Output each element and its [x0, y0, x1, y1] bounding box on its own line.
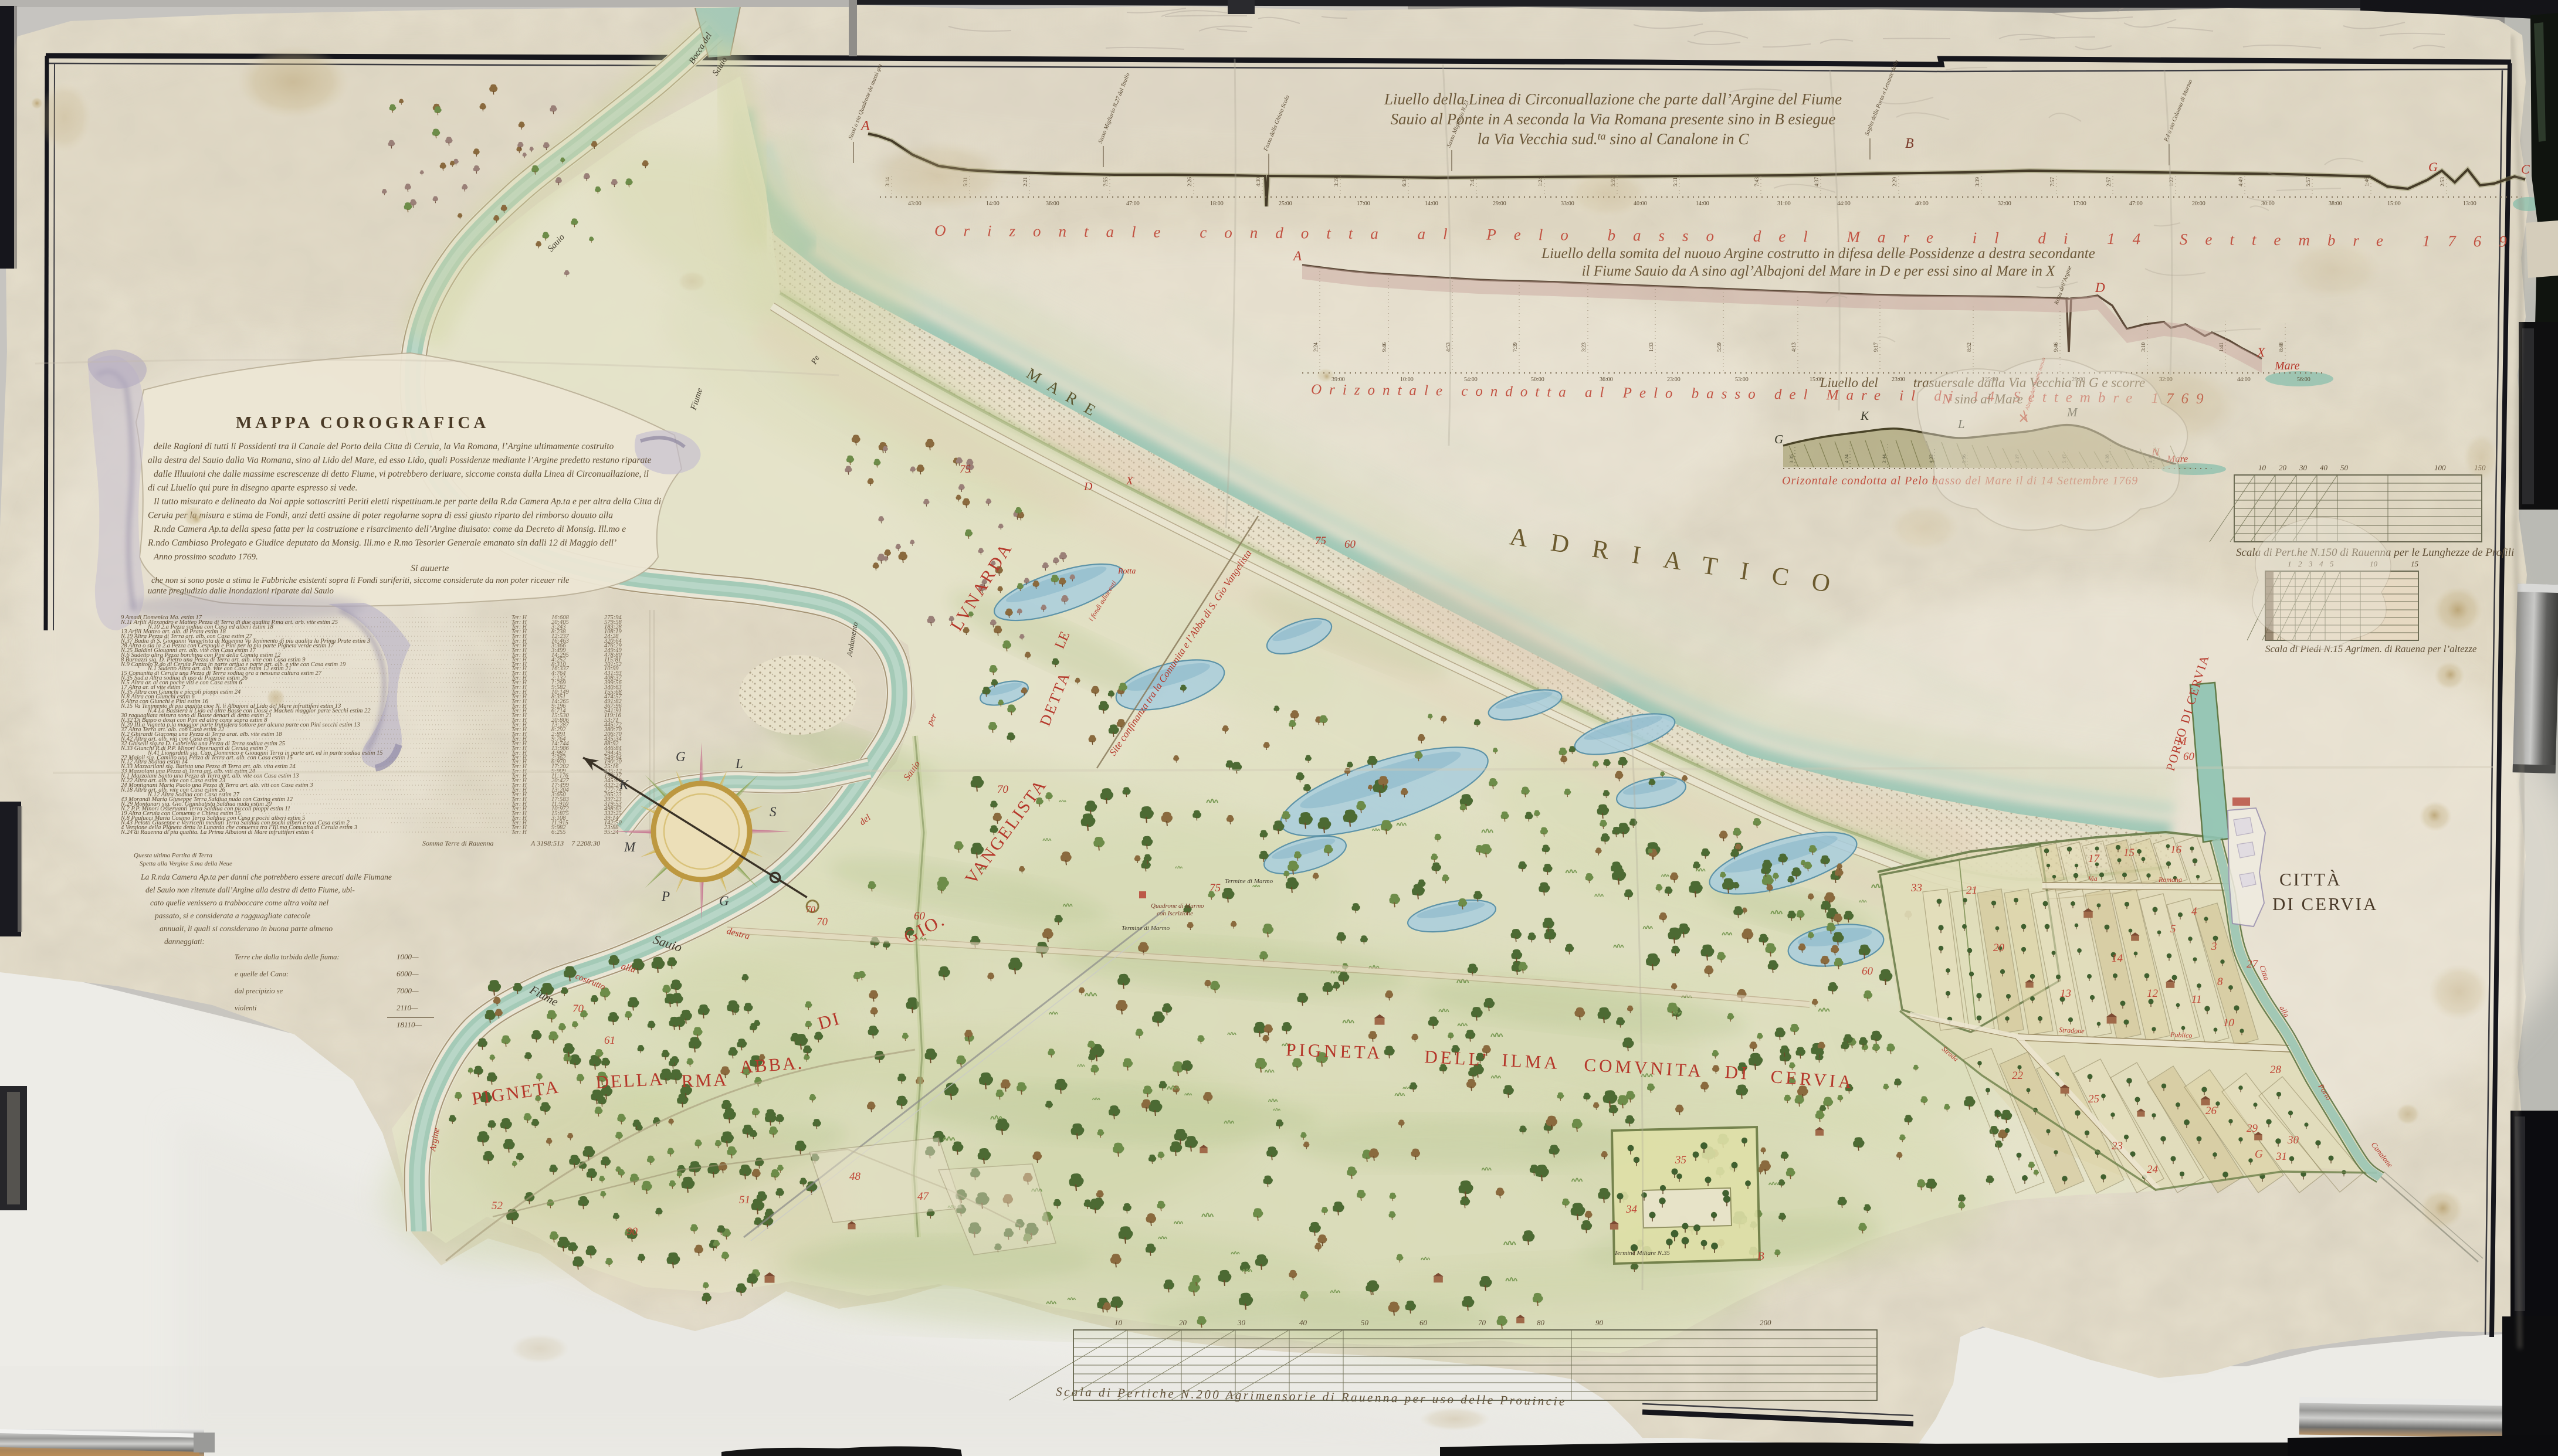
svg-text:R.ndo Cambiaso Prolegato e Giu: R.ndo Cambiaso Prolegato e Giudice deput…: [147, 538, 616, 548]
svg-text:Termine di Marmo: Termine di Marmo: [1225, 878, 1273, 885]
svg-text:D: D: [2095, 280, 2105, 295]
svg-text:6:34: 6:34: [1401, 177, 1407, 186]
svg-text:80: 80: [1537, 1318, 1545, 1327]
svg-text:60: 60: [1419, 1318, 1428, 1327]
svg-text:7:57: 7:57: [2049, 177, 2055, 186]
svg-text:Termine di Marmo: Termine di Marmo: [1122, 925, 1170, 932]
svg-text:G: G: [2428, 159, 2438, 174]
svg-text:di cui Liuello qui pure in dis: di cui Liuello qui pure in disegno apart…: [148, 483, 357, 493]
svg-text:Il tutto misurato e delineato: Il tutto misurato e delineato da Noi app…: [153, 497, 661, 507]
svg-text:dal precipizio se: dal precipizio se: [235, 987, 283, 995]
svg-text:44:00: 44:00: [2237, 376, 2251, 383]
svg-text:32:00: 32:00: [1998, 201, 2011, 207]
svg-text:passato, si e considerata a ra: passato, si e considerata a ragguagliate…: [154, 911, 310, 920]
svg-text:A: A: [1292, 249, 1302, 263]
svg-text:27: 27: [2247, 958, 2259, 970]
svg-text:70: 70: [572, 1003, 584, 1015]
svg-text:18110—: 18110—: [397, 1020, 422, 1029]
svg-text:26: 26: [2205, 1105, 2217, 1117]
svg-text:10:00: 10:00: [1400, 376, 1414, 383]
svg-text:Via: Via: [2088, 874, 2098, 883]
svg-text:L: L: [735, 756, 743, 771]
svg-text:7:55: 7:55: [1103, 177, 1109, 186]
svg-text:33: 33: [1910, 882, 1922, 894]
svg-text:CITTÀ: CITTÀ: [2279, 869, 2342, 890]
svg-text:10: 10: [2258, 463, 2266, 472]
svg-text:44:00: 44:00: [1837, 201, 1851, 207]
svg-text:52: 52: [492, 1200, 503, 1212]
svg-text:2:26: 2:26: [1187, 177, 1192, 186]
svg-text:90: 90: [626, 1226, 638, 1238]
svg-text:2:57: 2:57: [2106, 177, 2112, 186]
svg-text:17:00: 17:00: [1357, 201, 1370, 207]
svg-text:PIGNETA: PIGNETA: [1286, 1039, 1383, 1063]
svg-text:29:00: 29:00: [1493, 201, 1506, 207]
svg-text:3:44: 3:44: [1881, 454, 1887, 463]
svg-text:K: K: [1860, 409, 1869, 423]
svg-text:1000—: 1000—: [397, 952, 419, 961]
svg-text:9:46: 9:46: [2053, 342, 2059, 352]
svg-text:30: 30: [2299, 463, 2308, 472]
svg-text:il Fiume Sauio da A sino agl’A: il Fiume Sauio da A sino agl’Albajoni de…: [1582, 263, 2056, 279]
svg-text:DELLA: DELLA: [595, 1068, 665, 1092]
svg-text:50: 50: [2340, 463, 2349, 472]
svg-text:200: 200: [1760, 1318, 1771, 1327]
svg-text:95:24: 95:24: [604, 829, 619, 836]
svg-text:15:00: 15:00: [2387, 201, 2401, 207]
svg-text:30: 30: [1237, 1318, 1246, 1327]
svg-text:5:57: 5:57: [2305, 177, 2311, 186]
svg-text:35: 35: [1675, 1154, 1686, 1166]
svg-text:5: 5: [2170, 923, 2176, 935]
svg-text:12: 12: [2147, 987, 2159, 1000]
svg-text:24: 24: [2147, 1163, 2159, 1176]
svg-text:7000—: 7000—: [397, 986, 419, 995]
svg-text:A: A: [860, 118, 870, 134]
svg-text:Rotta: Rotta: [1117, 567, 1136, 576]
svg-text:23: 23: [2112, 1140, 2123, 1152]
svg-text:cato quelle venissero a trabbo: cato quelle venissero a trabboccare come…: [150, 898, 328, 907]
svg-text:3:23: 3:23: [1581, 342, 1587, 352]
svg-text:50: 50: [1361, 1318, 1369, 1327]
svg-text:2:53: 2:53: [2440, 177, 2445, 186]
svg-text:con Iscrizione: con Iscrizione: [1157, 910, 1193, 917]
svg-text:Si auuerte: Si auuerte: [411, 564, 449, 573]
svg-text:3:39: 3:39: [1974, 177, 1980, 186]
svg-text:100: 100: [2434, 463, 2446, 472]
svg-text:G: G: [676, 749, 686, 764]
svg-text:20: 20: [1993, 942, 2005, 954]
svg-text:N.24 di Rauenna di piu qualita: N.24 di Rauenna di piu qualita. La Prima…: [120, 829, 314, 836]
svg-text:G: G: [2255, 1148, 2263, 1160]
svg-text:delle Ragioni di tutti li Poss: delle Ragioni di tutti li Possidenti tra…: [154, 442, 614, 452]
svg-text:70: 70: [997, 783, 1009, 796]
svg-text:3:10: 3:10: [2140, 342, 2146, 352]
svg-text:18:00: 18:00: [1210, 201, 1224, 207]
svg-text:6:255: 6:255: [551, 829, 566, 836]
svg-text:e quelle del Cana:: e quelle del Cana:: [235, 970, 289, 978]
svg-text:Ter: H: Ter: H: [511, 829, 527, 836]
svg-text:8: 8: [2217, 976, 2223, 988]
svg-text:54:00: 54:00: [1464, 376, 1478, 383]
svg-text:ILMA: ILMA: [1502, 1050, 1561, 1073]
svg-text:8:48: 8:48: [2278, 342, 2284, 352]
svg-text:17: 17: [2088, 853, 2100, 865]
svg-text:la Via Vecchia sud.ta sino al: la Via Vecchia sud.ta sino al Canalone i…: [1478, 130, 1750, 148]
svg-text:30:00: 30:00: [2261, 201, 2275, 207]
svg-text:7:39: 7:39: [1512, 342, 1518, 352]
svg-text:RMA: RMA: [681, 1069, 729, 1091]
svg-text:M: M: [624, 840, 636, 854]
svg-text:Stradone: Stradone: [2059, 1026, 2085, 1035]
svg-text:15: 15: [2123, 847, 2135, 859]
svg-text:4:24: 4:24: [1844, 454, 1849, 463]
svg-text:8:52: 8:52: [1966, 342, 1972, 352]
svg-text:40: 40: [2320, 463, 2328, 472]
svg-text:3:35: 3:35: [1788, 454, 1794, 463]
svg-text:36:00: 36:00: [1046, 201, 1059, 207]
svg-text:M: M: [2177, 735, 2187, 748]
svg-text:Liuello della Linea di Circonu: Liuello della Linea di Circonuallazione …: [1384, 90, 1842, 108]
svg-text:5:59: 5:59: [1716, 342, 1722, 352]
svg-text:1:24: 1:24: [1537, 177, 1543, 186]
svg-text:23:00: 23:00: [1892, 376, 1905, 383]
svg-text:dalle Illuuioni che dalle mass: dalle Illuuioni che dalle massime escres…: [154, 469, 649, 479]
svg-text:2:29: 2:29: [1892, 177, 1898, 186]
svg-text:60: 60: [1344, 538, 1356, 551]
svg-text:1:41: 1:41: [2218, 342, 2224, 352]
svg-text:90: 90: [1595, 1318, 1604, 1327]
svg-text:5:11: 5:11: [1672, 177, 1678, 186]
svg-text:36:00: 36:00: [1600, 376, 1613, 383]
svg-text:70: 70: [816, 916, 828, 928]
svg-text:2:21: 2:21: [1022, 177, 1028, 186]
svg-text:annuali, li quali si considera: annuali, li quali si considerano in buon…: [160, 924, 333, 933]
svg-text:Publico: Publico: [2170, 1030, 2193, 1040]
svg-text:4:30: 4:30: [1255, 177, 1261, 186]
svg-text:14:00: 14:00: [1696, 201, 1709, 207]
svg-text:23:00: 23:00: [1667, 376, 1681, 383]
svg-text:6000—: 6000—: [397, 969, 419, 978]
svg-text:11: 11: [2191, 993, 2202, 1006]
svg-text:D: D: [1083, 480, 1093, 493]
svg-text:DI CERVIA: DI CERVIA: [2272, 894, 2378, 914]
svg-text:B: B: [1757, 1250, 1764, 1262]
svg-text:47: 47: [917, 1190, 930, 1203]
svg-text:75: 75: [1315, 535, 1326, 547]
svg-text:Somma Terre di Rauenna: Somma Terre di Rauenna: [422, 839, 493, 847]
svg-text:47:00: 47:00: [2129, 201, 2143, 207]
svg-text:2110—: 2110—: [397, 1003, 418, 1012]
svg-text:21: 21: [1966, 884, 1977, 897]
svg-text:56:00: 56:00: [2297, 376, 2310, 383]
svg-text:60: 60: [1862, 965, 1873, 978]
svg-text:MAPPA COROGRAFICA: MAPPA COROGRAFICA: [236, 413, 490, 432]
svg-text:51: 51: [739, 1194, 750, 1206]
svg-text:7:43: 7:43: [1754, 177, 1760, 186]
svg-text:40:00: 40:00: [1915, 201, 1929, 207]
svg-text:13: 13: [2060, 987, 2071, 1000]
svg-text:DELL’: DELL’: [1424, 1046, 1490, 1070]
svg-text:3: 3: [2211, 941, 2217, 953]
svg-text:7:43: 7:43: [1469, 177, 1475, 186]
svg-text:61: 61: [604, 1034, 615, 1047]
svg-text:14: 14: [2112, 952, 2123, 965]
svg-text:31: 31: [2275, 1150, 2287, 1163]
svg-text:G: G: [1774, 432, 1783, 446]
svg-text:Mare: Mare: [2274, 359, 2300, 372]
svg-text:16: 16: [2170, 844, 2182, 856]
svg-text:G: G: [719, 894, 729, 908]
svg-text:31:00: 31:00: [1777, 201, 1791, 207]
svg-text:X: X: [2257, 345, 2266, 359]
svg-text:20:00: 20:00: [2192, 201, 2205, 207]
svg-text:Liuello della somita del nuouo: Liuello della somita del nuouo Argine co…: [1541, 246, 2095, 262]
svg-text:4:13: 4:13: [1791, 342, 1797, 352]
svg-text:10: 10: [1114, 1318, 1123, 1327]
svg-text:4:49: 4:49: [2238, 177, 2244, 186]
svg-text:Terre che dalla torbida delle: Terre che dalla torbida delle fiuma:: [235, 953, 340, 961]
svg-text:50:00: 50:00: [1531, 376, 1544, 383]
svg-text:3:19: 3:19: [1333, 177, 1339, 186]
svg-text:70: 70: [1478, 1318, 1486, 1327]
svg-text:75: 75: [1209, 882, 1221, 894]
svg-text:Romana: Romana: [2158, 875, 2182, 884]
svg-text:14:00: 14:00: [986, 201, 1000, 207]
svg-text:del Sauio non ritenute dall’Ar: del Sauio non ritenute dall’Argine alla …: [145, 885, 355, 894]
svg-text:28: 28: [2270, 1064, 2282, 1076]
svg-text:Anno prossimo scaduto 1769.: Anno prossimo scaduto 1769.: [153, 552, 258, 562]
svg-text:29: 29: [2247, 1122, 2258, 1135]
svg-text:30: 30: [2287, 1134, 2299, 1146]
svg-text:25: 25: [2088, 1093, 2099, 1105]
svg-text:Quadrone di Marmo: Quadrone di Marmo: [1151, 902, 1204, 909]
svg-text:Spetta alla Vergine S.ma della: Spetta alla Vergine S.ma della Neue: [140, 860, 232, 867]
svg-text:danneggiati:: danneggiati:: [164, 937, 205, 946]
svg-text:4:37: 4:37: [1814, 177, 1820, 186]
svg-text:70: 70: [806, 905, 815, 915]
svg-text:uante pregiudizio dalle Inonda: uante pregiudizio dalle Inondazioni ripa…: [148, 586, 334, 596]
svg-text:15: 15: [2411, 559, 2419, 568]
svg-text:14:00: 14:00: [1425, 201, 1438, 207]
svg-text:violenti: violenti: [235, 1004, 257, 1012]
svg-text:alla destra del Sauio dalla Vi: alla destra del Sauio dalla Via Romana, …: [148, 456, 652, 466]
svg-text:1:46: 1:46: [2364, 177, 2370, 186]
svg-text:53:00: 53:00: [1735, 376, 1749, 383]
svg-text:40: 40: [1299, 1318, 1307, 1327]
svg-text:10: 10: [2223, 1017, 2235, 1029]
svg-text:P: P: [661, 889, 670, 904]
svg-text:K: K: [619, 778, 629, 792]
svg-text:DI: DI: [1724, 1061, 1751, 1084]
svg-text:75: 75: [960, 463, 971, 476]
svg-text:38:00: 38:00: [2329, 201, 2342, 207]
svg-text:20: 20: [2279, 463, 2287, 472]
svg-text:che non si sono poste a stima: che non si sono poste a stima le Fabbric…: [151, 576, 570, 585]
svg-text:1:33: 1:33: [1648, 342, 1654, 352]
svg-text:47:00: 47:00: [1126, 201, 1140, 207]
svg-text:A 3198:513 7 2208:30: A 3198:513 7 2208:30: [530, 839, 600, 847]
svg-text:25:00: 25:00: [1279, 201, 1292, 207]
svg-text:9:17: 9:17: [1873, 342, 1879, 352]
svg-text:Ceruia per la misura e stima d: Ceruia per la misura e stima de Fondi, a…: [148, 511, 613, 521]
svg-text:9:46: 9:46: [1381, 342, 1387, 352]
svg-text:20: 20: [1179, 1318, 1187, 1327]
svg-text:X: X: [1126, 475, 1134, 487]
svg-text:48: 48: [849, 1170, 861, 1183]
svg-text:17:00: 17:00: [2073, 201, 2086, 207]
svg-text:Questa ultima Partita di Terra: Questa ultima Partita di Terra: [134, 852, 213, 859]
svg-text:B: B: [1905, 136, 1914, 151]
svg-text:C: C: [2521, 162, 2530, 177]
svg-text:R.nda Camera Ap.ta della spesa: R.nda Camera Ap.ta della spesa fatta per…: [153, 524, 626, 534]
svg-text:S: S: [770, 805, 777, 819]
svg-text:60: 60: [914, 910, 926, 922]
svg-text:4: 4: [2191, 905, 2197, 918]
svg-text:60: 60: [2183, 751, 2195, 763]
svg-text:22: 22: [2012, 1070, 2024, 1082]
svg-text:13:00: 13:00: [2463, 201, 2476, 207]
svg-text:La R.nda Camera Ap.ta per dann: La R.nda Camera Ap.ta per danni che potr…: [140, 873, 392, 881]
svg-text:2:24: 2:24: [1313, 342, 1319, 352]
svg-text:34: 34: [1625, 1203, 1638, 1216]
